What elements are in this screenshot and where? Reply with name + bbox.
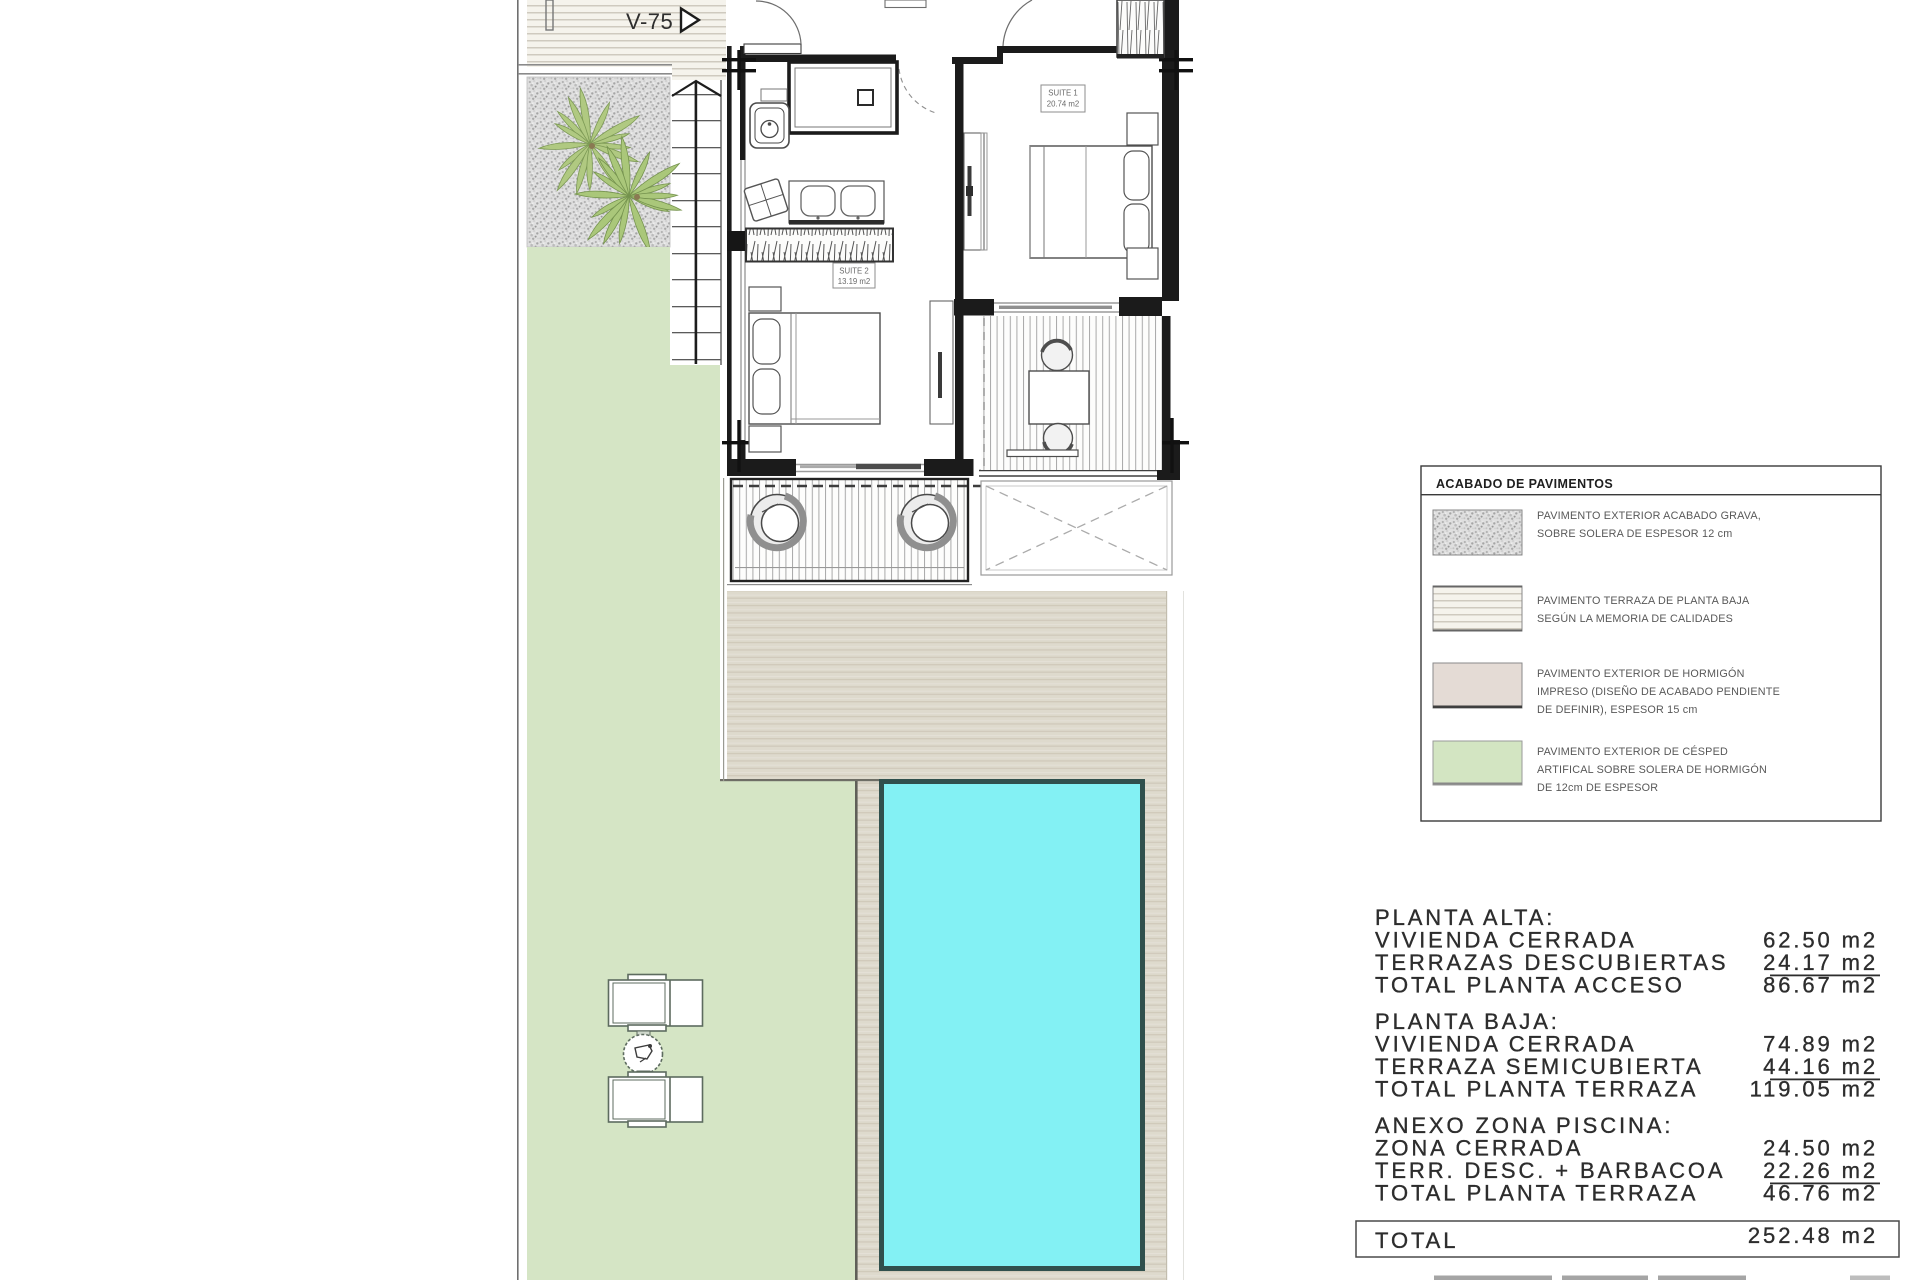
svg-text:20.74 m2: 20.74 m2: [1047, 100, 1080, 109]
svg-text:119.05 m2: 119.05 m2: [1750, 1077, 1878, 1102]
svg-text:TOTAL: TOTAL: [1375, 1228, 1458, 1253]
svg-text:PAVIMENTO EXTERIOR ACABADO GRA: PAVIMENTO EXTERIOR ACABADO GRAVA,: [1537, 510, 1761, 522]
svg-text:VIVIENDA CERRADA: VIVIENDA CERRADA: [1375, 928, 1637, 953]
svg-text:DE DEFINIR), ESPESOR 15 cm: DE DEFINIR), ESPESOR 15 cm: [1537, 704, 1698, 716]
svg-text:PAVIMENTO EXTERIOR DE HORMIGÓN: PAVIMENTO EXTERIOR DE HORMIGÓN: [1537, 667, 1745, 680]
svg-text:TERRAZAS DESCUBIERTAS: TERRAZAS DESCUBIERTAS: [1375, 950, 1728, 975]
svg-text:46.76 m2: 46.76 m2: [1763, 1181, 1878, 1206]
svg-text:PAVIMENTO TERRAZA DE PLANTA BA: PAVIMENTO TERRAZA DE PLANTA BAJA: [1537, 595, 1750, 607]
svg-text:SOBRE SOLERA DE ESPESOR 12 cm: SOBRE SOLERA DE ESPESOR 12 cm: [1537, 528, 1732, 540]
svg-text:ARTIFICAL SOBRE SOLERA DE HORM: ARTIFICAL SOBRE SOLERA DE HORMIGÓN: [1537, 763, 1767, 776]
svg-text:DE 12cm DE ESPESOR: DE 12cm DE ESPESOR: [1537, 782, 1658, 794]
svg-text:PLANTA BAJA:: PLANTA BAJA:: [1375, 1009, 1560, 1034]
svg-text:TOTAL PLANTA ACCESO: TOTAL PLANTA ACCESO: [1375, 973, 1685, 998]
svg-text:86.67 m2: 86.67 m2: [1763, 973, 1878, 998]
svg-text:ZONA CERRADA: ZONA CERRADA: [1375, 1136, 1583, 1161]
svg-text:24.50 m2: 24.50 m2: [1763, 1136, 1878, 1161]
svg-text:SEGÚN LA MEMORIA DE CALIDADES: SEGÚN LA MEMORIA DE CALIDADES: [1537, 612, 1733, 625]
svg-text:ANEXO ZONA PISCINA:: ANEXO ZONA PISCINA:: [1375, 1113, 1673, 1138]
svg-text:24.17 m2: 24.17 m2: [1763, 950, 1878, 975]
svg-text:PLANTA ALTA:: PLANTA ALTA:: [1375, 905, 1555, 930]
svg-text:ACABADO DE PAVIMENTOS: ACABADO DE PAVIMENTOS: [1436, 477, 1613, 491]
svg-text:TOTAL PLANTA TERRAZA: TOTAL PLANTA TERRAZA: [1375, 1077, 1698, 1102]
svg-text:252.48 m2: 252.48 m2: [1748, 1223, 1878, 1248]
svg-text:22.26 m2: 22.26 m2: [1763, 1158, 1878, 1183]
svg-text:13.19 m2: 13.19 m2: [838, 277, 871, 286]
svg-text:SUITE 1: SUITE 1: [1048, 89, 1077, 98]
svg-text:TOTAL PLANTA TERRAZA: TOTAL PLANTA TERRAZA: [1375, 1181, 1698, 1206]
svg-text:VIVIENDA CERRADA: VIVIENDA CERRADA: [1375, 1032, 1637, 1057]
svg-text:44.16 m2: 44.16 m2: [1763, 1054, 1878, 1079]
svg-text:V-75: V-75: [626, 9, 673, 34]
svg-text:IMPRESO (DISEÑO DE ACABADO PEN: IMPRESO (DISEÑO DE ACABADO PENDIENTE: [1537, 685, 1780, 698]
svg-text:TERRAZA SEMICUBIERTA: TERRAZA SEMICUBIERTA: [1375, 1054, 1704, 1079]
svg-text:PAVIMENTO EXTERIOR DE CÉSPED: PAVIMENTO EXTERIOR DE CÉSPED: [1537, 745, 1728, 758]
svg-text:SUITE 2: SUITE 2: [839, 267, 868, 276]
svg-text:TERR. DESC. + BARBACOA: TERR. DESC. + BARBACOA: [1375, 1158, 1725, 1183]
svg-text:62.50 m2: 62.50 m2: [1763, 928, 1878, 953]
svg-text:74.89 m2: 74.89 m2: [1763, 1032, 1878, 1057]
